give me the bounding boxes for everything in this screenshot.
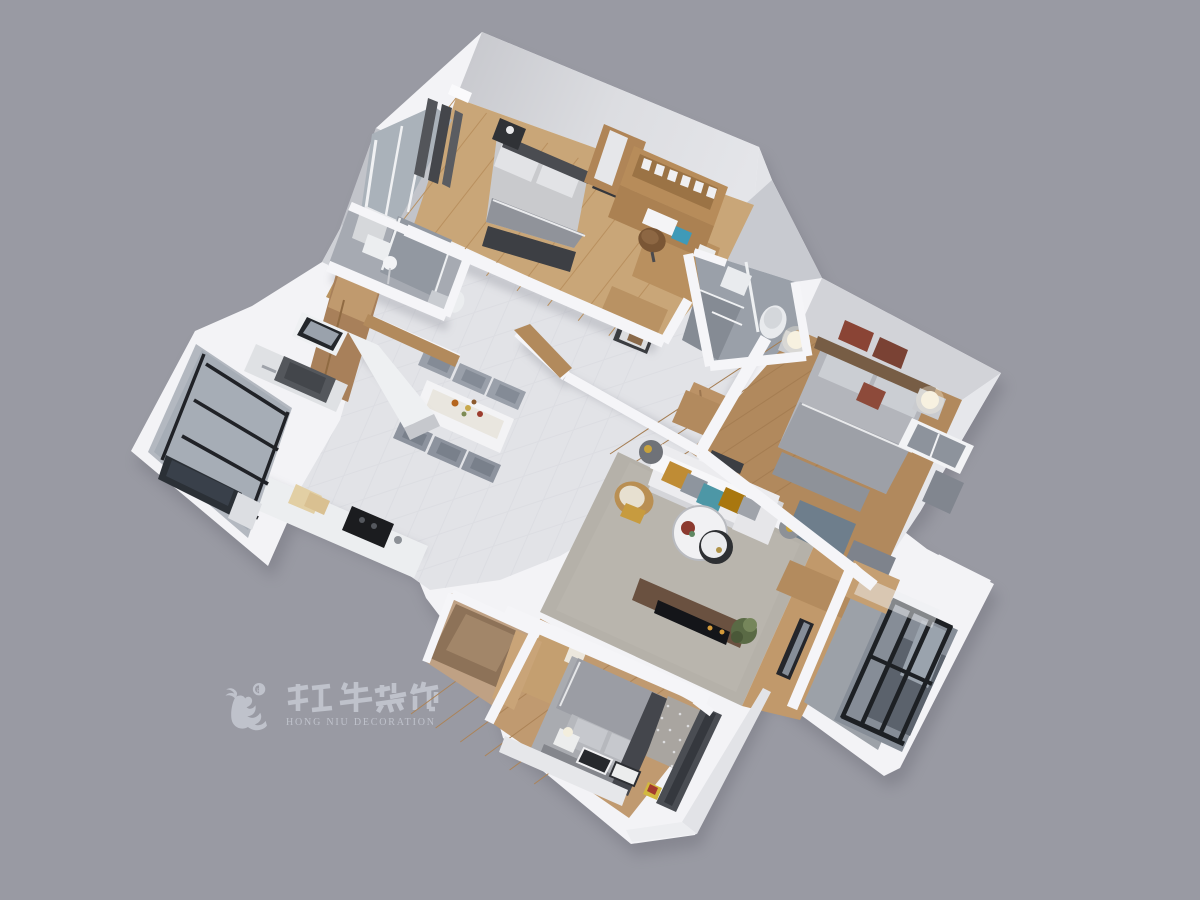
svg-text:HONG NIU DECORATION: HONG NIU DECORATION <box>286 717 436 728</box>
